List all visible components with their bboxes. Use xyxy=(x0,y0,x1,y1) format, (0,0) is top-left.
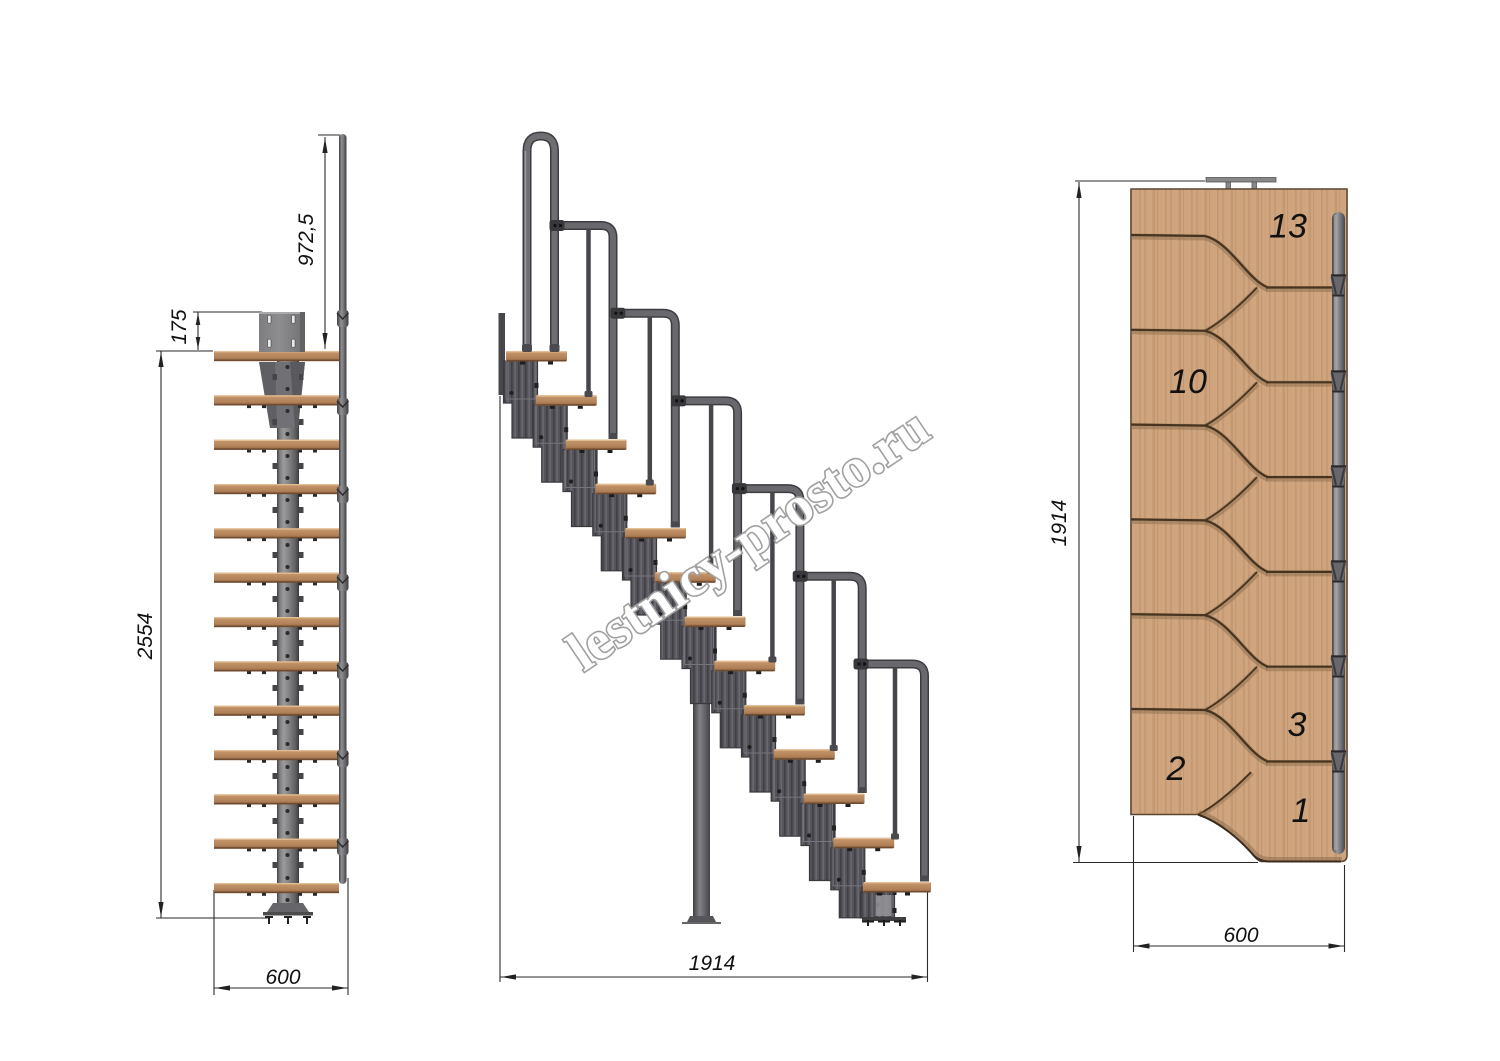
svg-text:3: 3 xyxy=(1288,706,1307,744)
svg-text:600: 600 xyxy=(1223,924,1258,947)
svg-text:1: 1 xyxy=(1292,792,1311,830)
svg-text:13: 13 xyxy=(1269,208,1307,246)
svg-text:972,5: 972,5 xyxy=(295,213,318,266)
svg-text:1914: 1914 xyxy=(689,952,736,975)
svg-text:1914: 1914 xyxy=(1048,500,1071,547)
svg-text:10: 10 xyxy=(1169,363,1207,401)
svg-text:2554: 2554 xyxy=(134,613,157,661)
svg-text:600: 600 xyxy=(265,966,300,989)
svg-text:2: 2 xyxy=(1166,750,1186,788)
svg-text:175: 175 xyxy=(168,309,191,344)
